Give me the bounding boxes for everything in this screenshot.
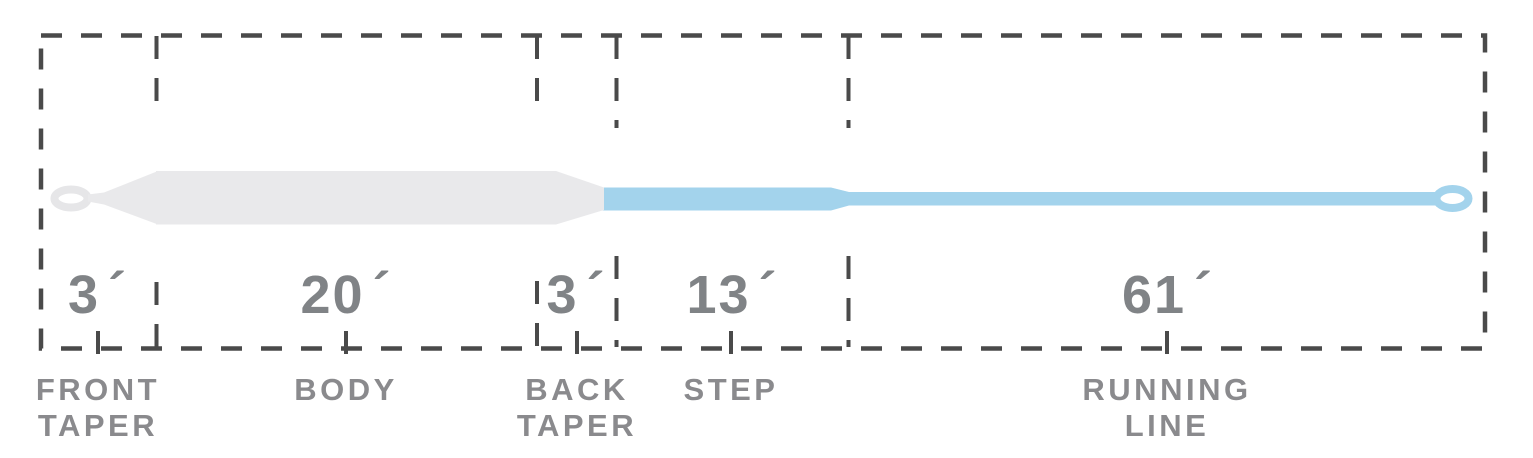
label-line: STEP bbox=[581, 372, 881, 408]
foot-prime-mark: ´ bbox=[373, 270, 393, 314]
label-line: TAPER bbox=[477, 408, 677, 444]
back-taper-shape bbox=[556, 171, 604, 225]
label-running-line: RUNNINGLINE bbox=[967, 372, 1367, 444]
front-taper-shape bbox=[88, 171, 158, 225]
body-section-shape bbox=[156, 171, 556, 225]
label-front-taper: FRONTTAPER bbox=[0, 372, 198, 444]
length-front-taper: 3´ bbox=[40, 270, 156, 328]
length-running-line: 61´ bbox=[849, 270, 1487, 328]
label-step: STEP bbox=[581, 372, 881, 408]
foot-prime-mark: ´ bbox=[1194, 270, 1214, 314]
length-value: 20 bbox=[300, 270, 364, 320]
length-value: 3 bbox=[546, 270, 578, 320]
label-line: FRONT bbox=[0, 372, 198, 408]
foot-prime-mark: ´ bbox=[759, 270, 779, 314]
length-step: 13´ bbox=[616, 270, 849, 328]
label-line: LINE bbox=[967, 408, 1367, 444]
length-value: 3 bbox=[68, 270, 100, 320]
label-line: TAPER bbox=[0, 408, 198, 444]
length-value: 13 bbox=[686, 270, 750, 320]
rear-welded-loop-icon bbox=[1437, 189, 1469, 208]
front-welded-loop-icon bbox=[55, 190, 88, 208]
running-line-shape bbox=[849, 192, 1436, 206]
label-line: RUNNING bbox=[967, 372, 1367, 408]
label-line: BODY bbox=[196, 372, 496, 408]
step-to-running-taper-shape bbox=[831, 188, 849, 211]
length-value: 61 bbox=[1122, 270, 1186, 320]
label-body: BODY bbox=[196, 372, 496, 408]
step-section-shape bbox=[601, 188, 831, 211]
length-body: 20´ bbox=[156, 270, 537, 328]
length-back-taper: 3´ bbox=[537, 270, 616, 328]
foot-prime-mark: ´ bbox=[587, 270, 607, 314]
foot-prime-mark: ´ bbox=[108, 270, 128, 314]
fly-line-taper-diagram: 3´ 20´ 3´ 13´ 61´ FRONTTAPER BODY BACKTA… bbox=[0, 0, 1533, 458]
fly-line-profile bbox=[55, 171, 1469, 225]
